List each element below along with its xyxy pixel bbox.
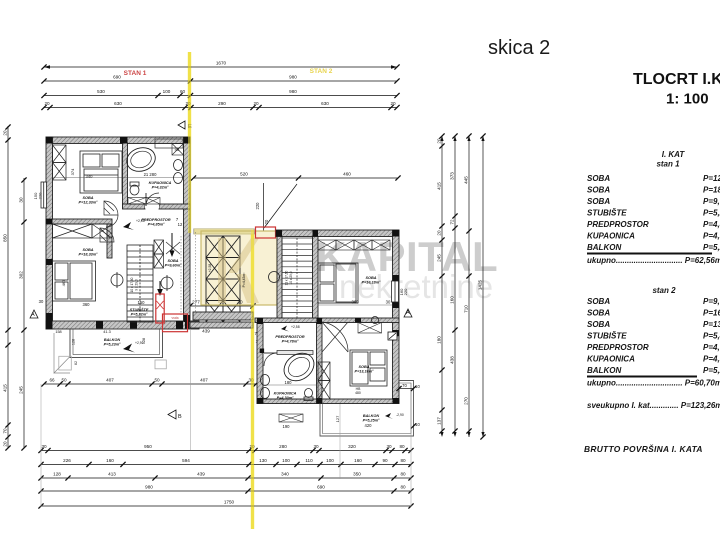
svg-text:P=18,33m²: P=18,33m²	[703, 186, 720, 195]
svg-text:I. KAT: I. KAT	[662, 150, 686, 159]
svg-text:ukupno........................: ukupno.............................. P=6…	[587, 256, 720, 265]
svg-text:30: 30	[39, 299, 44, 304]
svg-text:+2,58: +2,58	[291, 325, 300, 329]
svg-text:P=9,60m²: P=9,60m²	[703, 197, 720, 206]
svg-text:20: 20	[253, 101, 259, 106]
svg-text:P=4,85m²: P=4,85m²	[703, 220, 720, 229]
svg-text:PREDPROSTOR: PREDPROSTOR	[587, 343, 649, 352]
svg-text:70: 70	[3, 428, 8, 434]
svg-text:STUBIŠTE: STUBIŠTE	[587, 209, 627, 218]
svg-text:SOBA: SOBA	[587, 309, 610, 318]
svg-text:50: 50	[154, 378, 160, 383]
svg-text:72: 72	[450, 219, 455, 225]
svg-text:KUPAONICA: KUPAONICA	[587, 355, 635, 364]
svg-text:445: 445	[464, 176, 469, 184]
svg-text:100: 100	[163, 89, 171, 94]
svg-text:SOBA: SOBA	[587, 297, 610, 306]
svg-text:340: 340	[86, 174, 94, 179]
svg-text:SOBA: SOBA	[83, 248, 94, 252]
svg-text:66: 66	[49, 378, 55, 383]
svg-text:A: A	[406, 310, 410, 316]
svg-text:P=13,16m²: P=13,16m²	[703, 320, 720, 329]
svg-text:850: 850	[3, 234, 8, 242]
svg-text:KUPAONICA: KUPAONICA	[587, 232, 635, 241]
svg-text:20: 20	[390, 101, 396, 106]
svg-text:-2,90: -2,90	[396, 413, 404, 417]
svg-text:P=4,30m²: P=4,30m²	[703, 355, 720, 364]
svg-text:520: 520	[240, 172, 248, 177]
svg-text:stan 2: stan 2	[652, 286, 676, 295]
svg-text:SOBA: SOBA	[587, 197, 610, 206]
svg-text:160: 160	[106, 458, 114, 463]
svg-text:KUPAONICA: KUPAONICA	[274, 392, 297, 396]
svg-text:150: 150	[138, 300, 146, 305]
svg-text:PREDPROSTOR: PREDPROSTOR	[587, 220, 649, 229]
svg-text:80: 80	[399, 444, 405, 449]
svg-text:TLOCRT I.KATA: TLOCRT I.KATA	[633, 71, 720, 88]
svg-text:20: 20	[3, 130, 8, 136]
svg-text:110: 110	[305, 458, 313, 463]
svg-text:P=16,18m²: P=16,18m²	[362, 281, 382, 285]
svg-text:415: 415	[3, 384, 8, 392]
svg-text:21 280: 21 280	[144, 172, 157, 177]
svg-text:HB: HB	[175, 148, 180, 152]
svg-text:438: 438	[450, 356, 455, 364]
svg-text:460: 460	[343, 172, 351, 177]
svg-text:20: 20	[437, 230, 442, 236]
svg-text:439: 439	[202, 329, 210, 334]
svg-text:340: 340	[281, 472, 289, 477]
svg-text:SOBA: SOBA	[168, 259, 179, 263]
svg-text:BALKON: BALKON	[104, 338, 120, 342]
svg-text:374: 374	[70, 168, 75, 175]
svg-text:350: 350	[353, 472, 361, 477]
svg-text:P=4,32m²: P=4,32m²	[152, 186, 170, 190]
svg-text:P=4,32m²: P=4,32m²	[703, 232, 720, 241]
svg-text:950: 950	[144, 444, 152, 449]
svg-text:P=12,33m²: P=12,33m²	[703, 174, 720, 183]
svg-text:158: 158	[55, 330, 61, 334]
svg-text:280: 280	[279, 444, 287, 449]
svg-text:10: 10	[415, 422, 420, 427]
svg-text:P=9,60m²: P=9,60m²	[165, 264, 183, 268]
svg-text:80: 80	[400, 485, 406, 490]
svg-text:P=4,43m²: P=4,43m²	[242, 272, 246, 288]
svg-text:P=13,16m²: P=13,16m²	[355, 370, 375, 374]
svg-text:180: 180	[285, 380, 293, 385]
svg-text:530: 530	[97, 89, 105, 94]
svg-text:980: 980	[289, 89, 297, 94]
svg-text:stan 1: stan 1	[656, 160, 680, 169]
svg-text:128: 128	[72, 339, 76, 345]
svg-text:P=4,78m²: P=4,78m²	[282, 340, 300, 344]
svg-text:P=5,25m²: P=5,25m²	[703, 366, 720, 375]
svg-text:100: 100	[326, 458, 334, 463]
svg-text:10: 10	[415, 384, 420, 389]
svg-text:P=4,78m²: P=4,78m²	[703, 343, 720, 352]
svg-text:630: 630	[321, 101, 329, 106]
svg-text:220: 220	[38, 192, 43, 199]
svg-text:90: 90	[382, 458, 388, 463]
svg-text:373: 373	[450, 172, 455, 180]
svg-text:413: 413	[108, 472, 116, 477]
svg-text:BALKON: BALKON	[363, 414, 379, 418]
svg-text:10 x 17,60: 10 x 17,60	[130, 277, 134, 292]
svg-text:P=5,23m²: P=5,23m²	[104, 343, 122, 347]
svg-text:1750: 1750	[224, 500, 235, 505]
svg-text:STAN 2: STAN 2	[310, 68, 333, 75]
svg-text:P=5,43m²: P=5,43m²	[703, 332, 720, 341]
svg-text:11 x 17,60: 11 x 17,60	[285, 270, 289, 285]
svg-text:245: 245	[437, 254, 442, 262]
svg-text:30: 30	[313, 444, 319, 449]
svg-text:30: 30	[386, 300, 391, 305]
svg-text:160: 160	[354, 458, 362, 463]
svg-text:P=4,30m²: P=4,30m²	[277, 396, 295, 400]
svg-text:P=5,22m²: P=5,22m²	[703, 209, 720, 218]
svg-text:690: 690	[113, 75, 121, 80]
svg-text:12: 12	[178, 222, 183, 227]
svg-text:1425: 1425	[478, 279, 483, 290]
svg-text:SOBA: SOBA	[587, 186, 610, 195]
svg-text:P=5,25m²: P=5,25m²	[363, 419, 381, 423]
svg-text:82: 82	[74, 361, 78, 365]
svg-text:128: 128	[53, 472, 61, 477]
svg-text:467: 467	[61, 279, 66, 286]
svg-text:20: 20	[44, 101, 50, 106]
svg-text:SOBA: SOBA	[587, 320, 610, 329]
svg-text:PREDPROSTOR: PREDPROSTOR	[141, 218, 171, 222]
svg-text:80: 80	[400, 472, 406, 477]
svg-text:360: 360	[352, 300, 360, 305]
svg-text:70: 70	[402, 383, 407, 388]
svg-text:180: 180	[437, 336, 442, 344]
svg-text:SOBA: SOBA	[83, 196, 94, 200]
svg-text:630: 630	[114, 101, 122, 106]
svg-text:226: 226	[63, 458, 71, 463]
svg-text:BALKON: BALKON	[587, 366, 621, 375]
svg-text:ukupno........................: ukupno.............................. P=6…	[587, 379, 720, 388]
svg-text:B: B	[178, 414, 182, 420]
svg-text:710: 710	[464, 305, 469, 313]
svg-text:220: 220	[403, 288, 408, 295]
svg-text:690: 690	[317, 485, 325, 490]
svg-text:P=12,33m²: P=12,33m²	[79, 201, 99, 205]
svg-text:137: 137	[437, 417, 442, 425]
svg-text:SOBA: SOBA	[366, 276, 377, 280]
svg-text:420: 420	[365, 423, 373, 428]
svg-text:STUBIŠTE: STUBIŠTE	[130, 307, 149, 312]
svg-text:160: 160	[450, 296, 455, 304]
svg-text:407: 407	[106, 378, 114, 383]
svg-text:277: 277	[192, 300, 200, 305]
svg-text:60: 60	[180, 89, 186, 94]
svg-text:50: 50	[61, 378, 67, 383]
svg-text:nekretnine: nekretnine	[339, 268, 493, 305]
svg-text:P=4,85m²: P=4,85m²	[148, 223, 166, 227]
svg-text:skica 2: skica 2	[488, 37, 550, 59]
svg-text:220: 220	[255, 202, 260, 210]
svg-text:STUBIŠTE: STUBIŠTE	[587, 332, 627, 341]
svg-text:9 x 29,0: 9 x 29,0	[135, 279, 139, 291]
svg-text:480: 480	[355, 391, 361, 395]
svg-text:20: 20	[264, 219, 269, 224]
svg-text:30: 30	[386, 444, 392, 449]
svg-text:100: 100	[282, 458, 290, 463]
svg-text:20: 20	[3, 441, 8, 447]
svg-text:128: 128	[142, 338, 146, 344]
svg-text:1: 100: 1: 100	[666, 91, 709, 108]
svg-text:270: 270	[464, 397, 469, 405]
svg-text:STAN 1: STAN 1	[124, 70, 147, 77]
svg-text:SOBA: SOBA	[359, 365, 370, 369]
svg-text:127: 127	[335, 415, 340, 422]
svg-text:594: 594	[182, 458, 190, 463]
svg-text:SOBA: SOBA	[587, 174, 610, 183]
svg-text:190: 190	[283, 424, 291, 429]
svg-text:130: 130	[259, 458, 267, 463]
svg-text:302: 302	[19, 271, 24, 279]
svg-text:407: 407	[200, 378, 208, 383]
svg-text:BRUTTO POVRŠINA I. KATA: BRUTTO POVRŠINA I. KATA	[584, 443, 703, 454]
svg-text:sveukupno I. kat.............: sveukupno I. kat............. P=123,26m²	[587, 401, 720, 410]
svg-text:P=18,33m²: P=18,33m²	[79, 253, 99, 257]
svg-text:P=9,60m²: P=9,60m²	[703, 297, 720, 306]
svg-text:10 x 29,0: 10 x 29,0	[289, 271, 293, 284]
svg-text:245: 245	[19, 386, 24, 394]
svg-text:439: 439	[197, 472, 205, 477]
svg-text:1670: 1670	[216, 61, 227, 66]
svg-text:415: 415	[437, 182, 442, 190]
svg-text:980: 980	[145, 485, 153, 490]
svg-text:+2,58: +2,58	[208, 264, 212, 273]
svg-text:360: 360	[83, 302, 91, 307]
svg-text:vrata: vrata	[171, 316, 178, 320]
svg-text:41.3: 41.3	[103, 330, 110, 334]
svg-text:A: A	[31, 312, 35, 318]
svg-text:P=16,18m²: P=16,18m²	[703, 309, 720, 318]
svg-text:980: 980	[289, 75, 297, 80]
svg-text:P=5,22m²: P=5,22m²	[131, 313, 149, 317]
svg-text:P=5,23m²: P=5,23m²	[703, 243, 720, 252]
svg-text:80: 80	[400, 458, 406, 463]
svg-text:290: 290	[218, 101, 226, 106]
svg-text:BALKON: BALKON	[587, 243, 621, 252]
svg-text:KUPAONICA: KUPAONICA	[149, 181, 172, 185]
svg-text:PREDPROSTOR: PREDPROSTOR	[275, 335, 305, 339]
svg-text:30: 30	[19, 197, 24, 203]
svg-text:320: 320	[348, 444, 356, 449]
svg-text:30: 30	[41, 444, 47, 449]
